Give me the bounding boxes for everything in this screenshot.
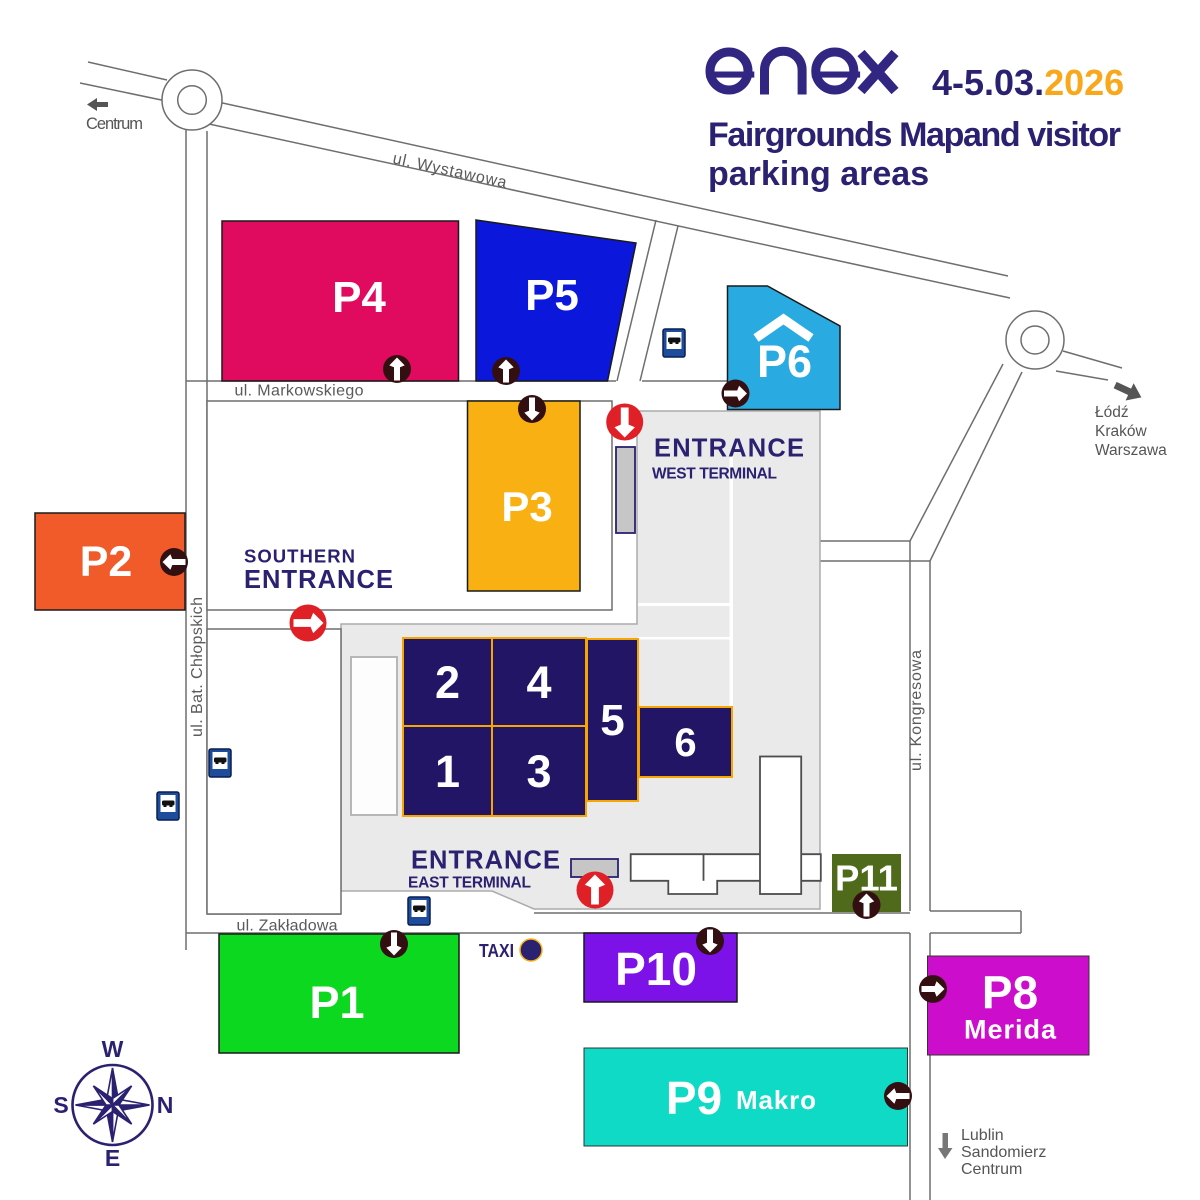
svg-text:3: 3 — [526, 746, 551, 797]
svg-text:Warszawa: Warszawa — [1095, 442, 1167, 459]
svg-text:Makro: Makro — [736, 1085, 816, 1115]
svg-text:S: S — [53, 1092, 68, 1118]
svg-text:N: N — [157, 1092, 174, 1118]
svg-text:parking areas: parking areas — [708, 155, 929, 193]
svg-text:P3: P3 — [501, 483, 552, 530]
svg-text:6: 6 — [674, 721, 696, 765]
svg-text:W: W — [102, 1036, 124, 1062]
svg-text:P2: P2 — [80, 538, 133, 586]
svg-text:P6: P6 — [757, 336, 812, 387]
svg-text:Centrum: Centrum — [961, 1161, 1022, 1178]
svg-text:ul. Markowskiego: ul. Markowskiego — [235, 383, 364, 400]
svg-text:Fairgrounds Mapand visitor: Fairgrounds Mapand visitor — [708, 116, 1121, 154]
svg-text:Sandomierz: Sandomierz — [961, 1144, 1046, 1161]
svg-text:ul. Bat. Chłopskich: ul. Bat. Chłopskich — [189, 597, 206, 737]
svg-text:P8: P8 — [982, 967, 1038, 1019]
svg-text:4: 4 — [526, 657, 551, 708]
svg-text:ENTRANCE: ENTRANCE — [411, 847, 560, 875]
svg-text:EAST TERMINAL: EAST TERMINAL — [408, 875, 531, 892]
svg-text:P5: P5 — [525, 271, 579, 320]
svg-text:Merida: Merida — [964, 1015, 1057, 1045]
svg-text:ENTRANCE: ENTRANCE — [244, 566, 393, 594]
svg-text:Kraków: Kraków — [1095, 423, 1147, 440]
svg-text:WEST TERMINAL: WEST TERMINAL — [652, 466, 777, 483]
svg-text:ENTRANCE: ENTRANCE — [654, 435, 804, 463]
svg-text:P4: P4 — [332, 273, 386, 322]
svg-text:TAXI: TAXI — [479, 941, 514, 961]
svg-text:Łódź: Łódź — [1095, 404, 1129, 421]
svg-text:5: 5 — [600, 696, 624, 745]
svg-text:SOUTHERN: SOUTHERN — [244, 546, 355, 567]
svg-text:P9: P9 — [666, 1072, 722, 1124]
svg-text:ul. Kongresowa: ul. Kongresowa — [908, 650, 925, 771]
svg-text:E: E — [105, 1145, 120, 1171]
svg-text:Centrum: Centrum — [86, 115, 143, 133]
svg-text:2: 2 — [435, 657, 460, 708]
svg-text:4-5.03.2026: 4-5.03.2026 — [932, 62, 1124, 103]
svg-text:1: 1 — [435, 746, 460, 797]
svg-text:P1: P1 — [309, 977, 364, 1028]
svg-text:P10: P10 — [615, 943, 697, 995]
svg-text:ul. Zakładowa: ul. Zakładowa — [237, 918, 338, 935]
svg-text:Lublin: Lublin — [961, 1127, 1004, 1144]
